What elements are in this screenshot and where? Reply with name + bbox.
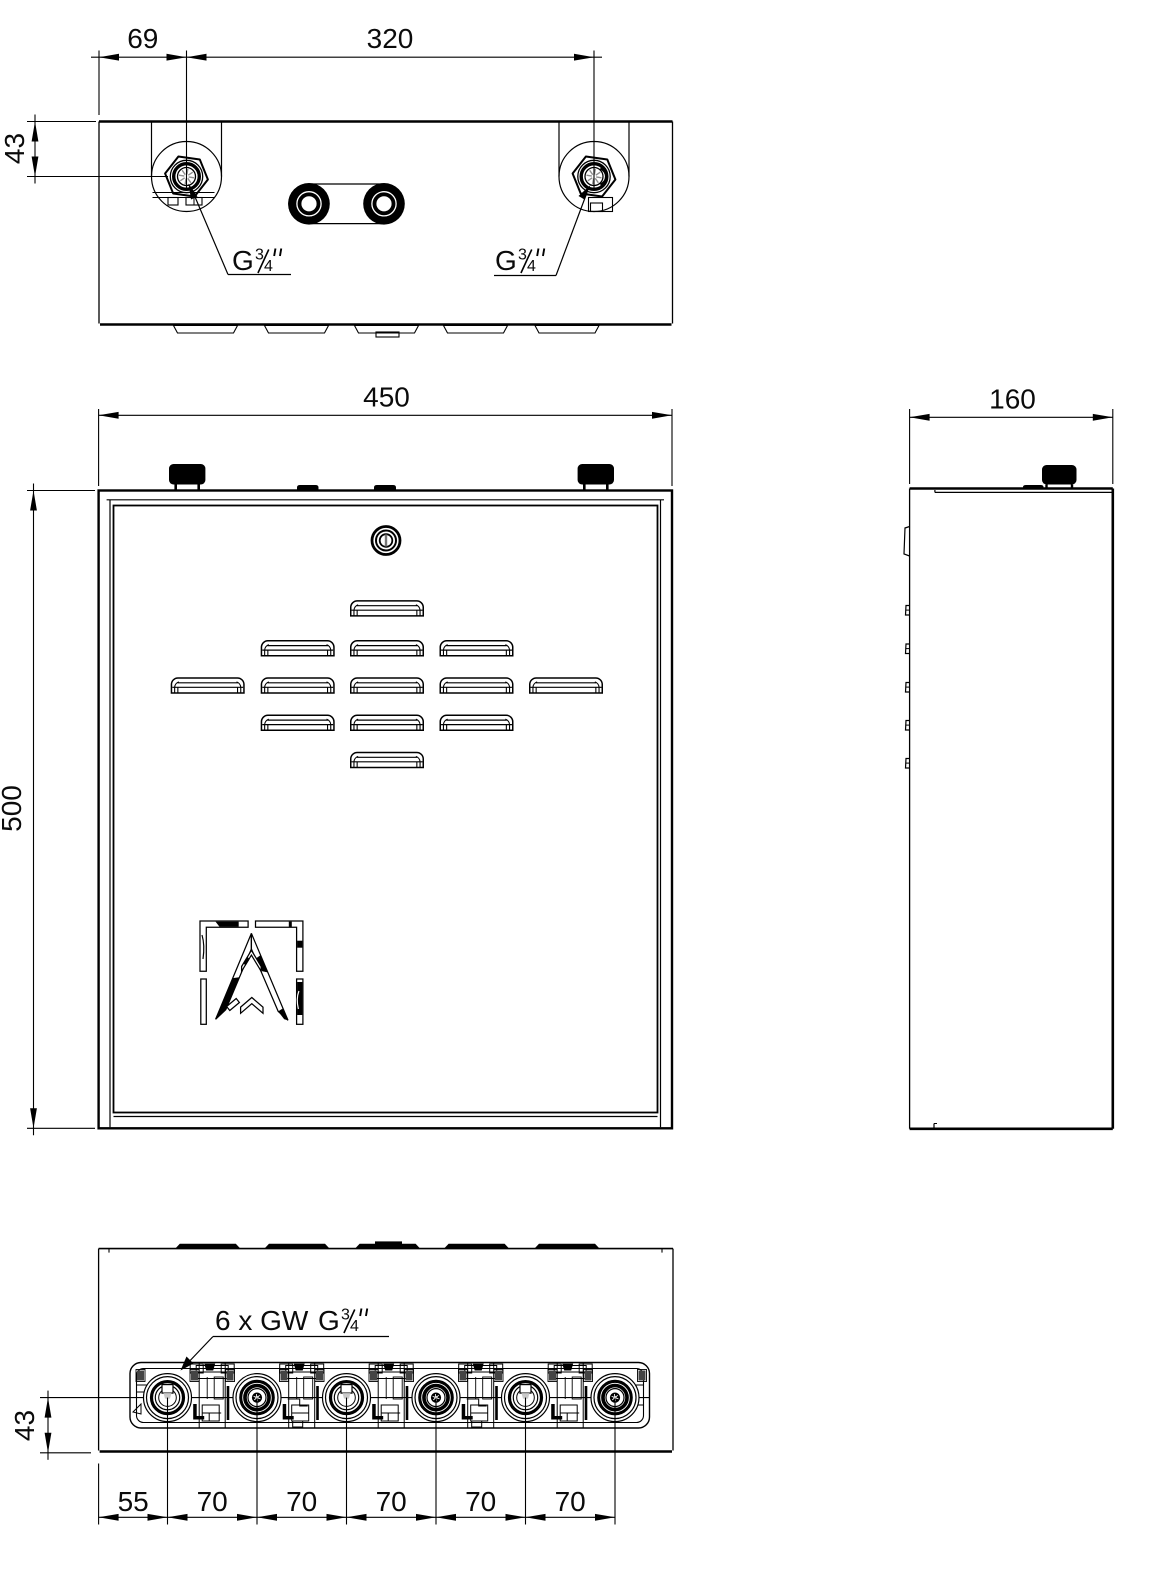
svg-text:43: 43 — [9, 1410, 40, 1441]
svg-text:3: 3 — [341, 1307, 350, 1324]
svg-text:G: G — [318, 1305, 340, 1336]
svg-text:G: G — [232, 245, 254, 276]
svg-text:6 x GW: 6 x GW — [215, 1305, 309, 1336]
svg-text:500: 500 — [0, 785, 27, 832]
svg-text:70: 70 — [197, 1486, 228, 1517]
svg-text:4: 4 — [350, 1318, 359, 1335]
svg-text:70: 70 — [286, 1486, 317, 1517]
svg-text:55: 55 — [118, 1486, 149, 1517]
svg-text:450: 450 — [363, 382, 410, 413]
svg-text:4: 4 — [264, 258, 273, 275]
svg-text:G: G — [495, 245, 517, 276]
svg-text:4: 4 — [527, 258, 536, 275]
svg-text:69: 69 — [127, 23, 158, 54]
svg-text:70: 70 — [376, 1486, 407, 1517]
svg-text:320: 320 — [367, 23, 414, 54]
svg-text:70: 70 — [465, 1486, 496, 1517]
svg-text:160: 160 — [989, 384, 1036, 415]
svg-text:3: 3 — [518, 247, 527, 264]
svg-text:43: 43 — [0, 133, 30, 164]
svg-text:3: 3 — [255, 247, 264, 264]
svg-text:70: 70 — [555, 1486, 586, 1517]
